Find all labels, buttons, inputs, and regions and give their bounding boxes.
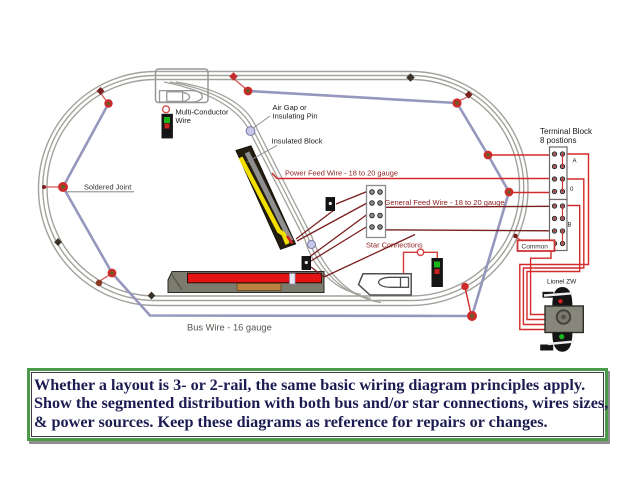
svg-text:Insulated Block: Insulated Block [272,137,323,146]
svg-text:Wire: Wire [176,116,191,125]
svg-text:Insulating Pin: Insulating Pin [273,112,318,121]
svg-text:B: B [568,223,572,229]
svg-text:Star Connections: Star Connections [366,241,423,250]
svg-text:Soldered Joint: Soldered Joint [84,183,131,192]
svg-text:General Feed Wire - 18 to 20 g: General Feed Wire - 18 to 20 gauge [385,198,505,207]
svg-text:8 postions: 8 postions [540,136,576,145]
svg-text:Power Feed Wire - 18 to 20 gau: Power Feed Wire - 18 to 20 gauge [285,169,398,178]
svg-text:Common: Common [522,243,549,250]
svg-text:Bus Wire - 16 gauge: Bus Wire - 16 gauge [187,323,272,333]
svg-text:Lionel ZW: Lionel ZW [547,279,577,286]
svg-text:Terminal Block: Terminal Block [540,127,593,136]
svg-text:A: A [573,159,577,165]
